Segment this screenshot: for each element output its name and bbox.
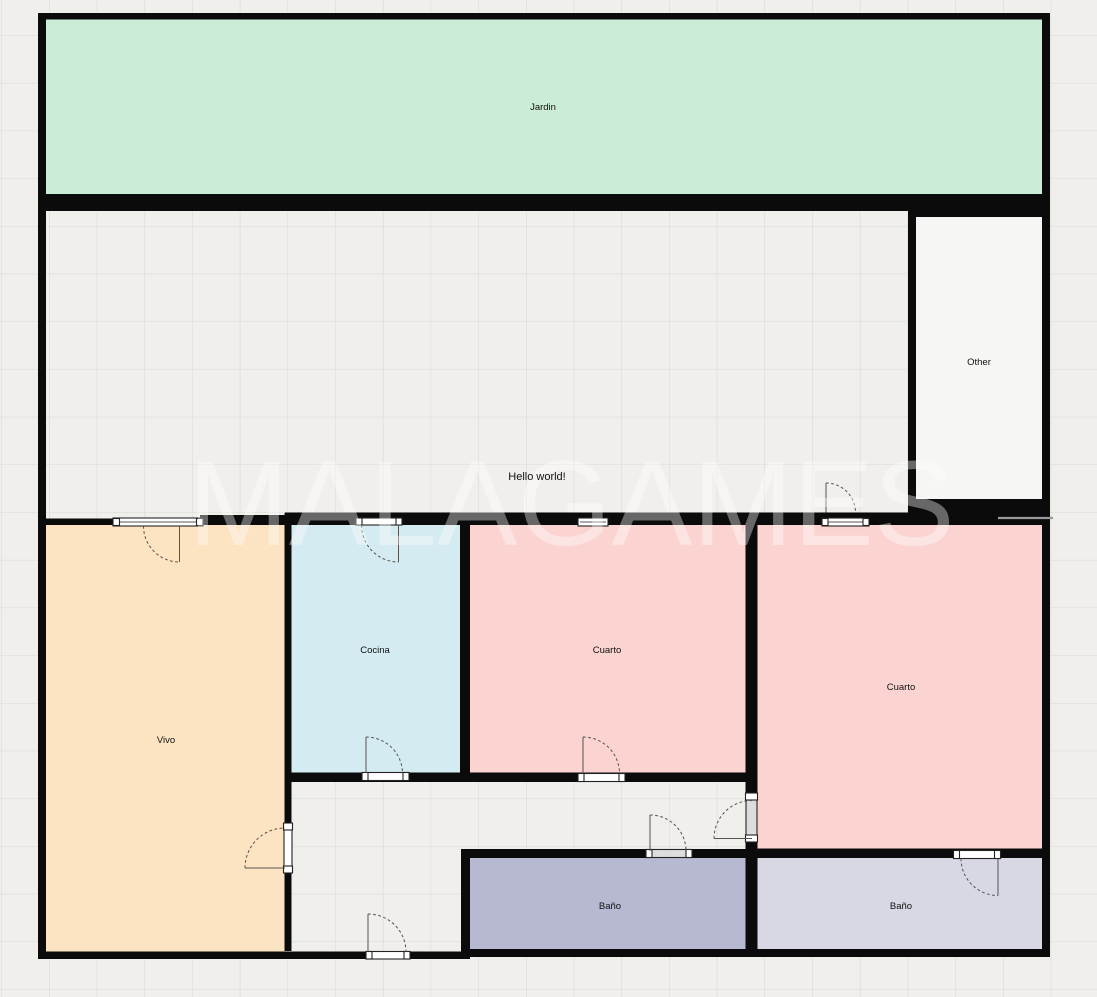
svg-text:MALAGAMES: MALAGAMES [188,435,955,571]
svg-text:Vivo: Vivo [157,735,175,746]
svg-text:Cocina: Cocina [360,645,390,656]
svg-text:Cuarto: Cuarto [593,645,622,656]
svg-text:Cuarto: Cuarto [887,682,916,693]
svg-text:Jardin: Jardin [530,102,556,113]
svg-text:Baño: Baño [599,901,621,912]
svg-text:Hello world!: Hello world! [508,471,565,483]
svg-text:Baño: Baño [890,901,912,912]
svg-text:Other: Other [967,357,991,368]
